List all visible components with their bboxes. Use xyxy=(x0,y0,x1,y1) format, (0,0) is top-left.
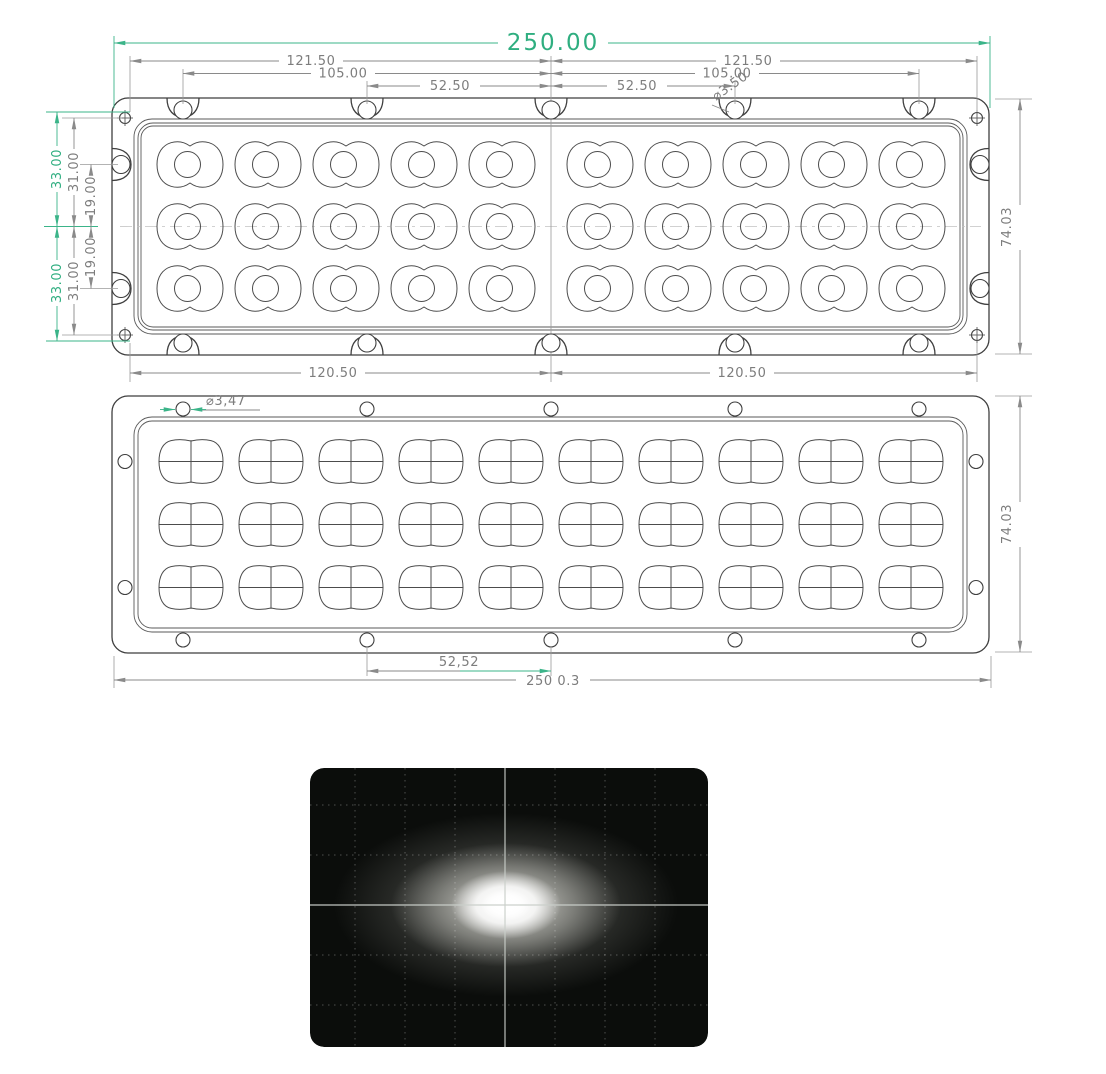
mount-hole xyxy=(118,455,132,469)
lens-top-view xyxy=(723,266,789,311)
lens-bottom-view xyxy=(399,503,463,547)
mount-hole xyxy=(544,402,558,416)
dim-corner-bottom: 31.00 xyxy=(67,261,82,301)
lens-module-datasheet: 250.00 121.50 121.50 105.00 105.00 52.50… xyxy=(0,0,1106,1074)
lens-top-view xyxy=(313,142,379,187)
lens-top-view xyxy=(567,266,633,311)
dim-base-left: 120.50 xyxy=(308,366,357,381)
lens-bottom-view xyxy=(799,503,863,547)
lens-top-view xyxy=(801,142,867,187)
lens-top-view xyxy=(645,266,711,311)
mount-hole xyxy=(544,633,558,647)
dim-base-right: 120.50 xyxy=(717,366,766,381)
lens-bottom-view xyxy=(239,566,303,610)
mount-hole xyxy=(360,402,374,416)
lens-bottom-view xyxy=(639,503,703,547)
lens-top-view xyxy=(469,266,535,311)
dim-row-top: 19.00 xyxy=(84,176,99,216)
dim-overall-width-bottom: 250 0.3 xyxy=(526,674,580,689)
lens-bottom-view xyxy=(399,440,463,484)
dim-row-bottom: 19.00 xyxy=(84,237,99,277)
mount-hole xyxy=(118,581,132,595)
dim-overall-height-bottom: 74.03 xyxy=(1000,504,1015,544)
dim-corner-top: 31.00 xyxy=(67,152,82,192)
mount-hole xyxy=(176,402,190,416)
lens-bottom-view xyxy=(879,440,943,484)
mount-hole xyxy=(728,633,742,647)
dim-half-left: 52.50 xyxy=(430,79,470,94)
mount-hole xyxy=(912,633,926,647)
dim-overall-height-top: 74.03 xyxy=(1000,207,1015,247)
lens-bottom-view xyxy=(719,566,783,610)
lens-top-view xyxy=(469,142,535,187)
lens-top-view xyxy=(313,266,379,311)
bottom-view xyxy=(112,396,989,653)
lens-bottom-view xyxy=(639,566,703,610)
lens-top-view xyxy=(235,142,301,187)
dim-hole-pitch-bottom: 52,52 xyxy=(439,655,479,670)
lens-bottom-view xyxy=(719,440,783,484)
lens-bottom-view xyxy=(559,503,623,547)
lens-top-view xyxy=(157,142,223,187)
dim-overall-width: 250.00 xyxy=(507,30,599,56)
lens-top-view xyxy=(391,142,457,187)
lens-bottom-view xyxy=(799,566,863,610)
lens-bottom-view xyxy=(159,503,223,547)
mount-hole xyxy=(971,156,989,174)
bottom-view-dimensions: ⌀3,47 52,52 250 0.3 74.03 xyxy=(114,394,1032,689)
lens-bottom-view xyxy=(479,503,543,547)
lens-top-view xyxy=(801,204,867,249)
lens-top-view xyxy=(391,266,457,311)
lens-bottom-view xyxy=(879,503,943,547)
lens-bottom-view xyxy=(239,503,303,547)
lens-bottom-view xyxy=(719,503,783,547)
mount-hole xyxy=(176,633,190,647)
lens-top-view xyxy=(723,142,789,187)
mount-hole xyxy=(174,334,192,352)
lens-top-view xyxy=(879,266,945,311)
lens-top-view xyxy=(801,266,867,311)
dim-edge-bottom: 33.00 xyxy=(50,263,65,303)
mount-hole xyxy=(912,402,926,416)
mount-hole xyxy=(542,334,560,352)
mount-hole xyxy=(360,633,374,647)
light-distribution-plot xyxy=(310,768,708,1047)
lens-top-view xyxy=(645,142,711,187)
mount-hole xyxy=(971,280,989,298)
lens-bottom-view xyxy=(479,440,543,484)
lens-bottom-view xyxy=(159,566,223,610)
mount-hole xyxy=(358,334,376,352)
lens-bottom-view xyxy=(239,440,303,484)
mount-hole xyxy=(969,455,983,469)
technical-drawing: 250.00 121.50 121.50 105.00 105.00 52.50… xyxy=(0,0,1106,720)
lens-bottom-view xyxy=(319,440,383,484)
mount-hole xyxy=(726,334,744,352)
lens-bottom-view xyxy=(799,440,863,484)
lens-bottom-view xyxy=(319,503,383,547)
lens-bottom-view xyxy=(559,440,623,484)
mount-hole xyxy=(910,334,928,352)
lens-bottom-view xyxy=(319,566,383,610)
dim-half-right: 52.50 xyxy=(617,79,657,94)
mount-hole xyxy=(542,101,560,119)
lens-array-bottom xyxy=(159,440,943,610)
dim-pitch-left: 105.00 xyxy=(318,67,367,82)
light-distribution-panel xyxy=(310,768,708,1047)
lens-bottom-view xyxy=(159,440,223,484)
lens-bottom-view xyxy=(879,566,943,610)
lens-top-view xyxy=(157,266,223,311)
top-view-dimensions: 250.00 121.50 121.50 105.00 105.00 52.50… xyxy=(44,30,1032,382)
mount-hole xyxy=(969,581,983,595)
mount-hole xyxy=(728,402,742,416)
lens-top-view xyxy=(879,142,945,187)
lens-top-view xyxy=(567,142,633,187)
lens-bottom-view xyxy=(559,566,623,610)
lens-bottom-view xyxy=(479,566,543,610)
top-view xyxy=(112,56,989,360)
dim-hole-diameter-bottom: ⌀3,47 xyxy=(206,394,246,409)
lens-top-view xyxy=(235,204,301,249)
lens-top-view xyxy=(235,266,301,311)
lens-bottom-view xyxy=(399,566,463,610)
dim-edge-top: 33.00 xyxy=(50,149,65,189)
lens-bottom-view xyxy=(639,440,703,484)
